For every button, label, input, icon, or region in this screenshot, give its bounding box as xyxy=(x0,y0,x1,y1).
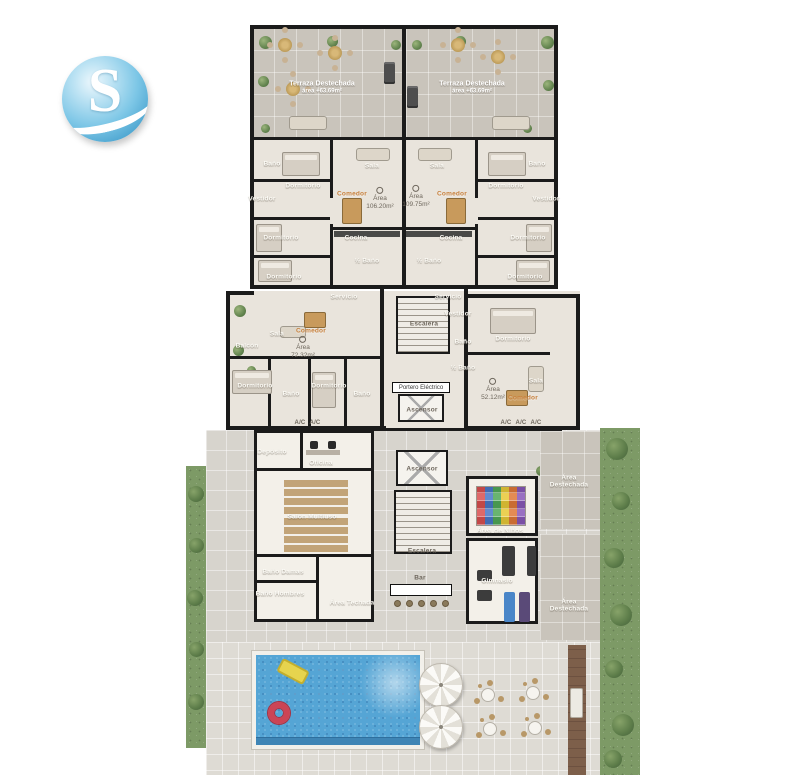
sofa-icon xyxy=(418,148,452,161)
wall xyxy=(468,352,550,355)
wall xyxy=(464,294,580,298)
label-ac: A/C xyxy=(295,420,306,426)
label-area-techada: Área Techada xyxy=(330,600,375,607)
plant-icon xyxy=(259,36,272,49)
label-ac: A/C xyxy=(531,420,542,426)
label-ac: A/C xyxy=(501,420,512,426)
table-icon xyxy=(278,38,292,52)
bush-icon xyxy=(187,590,203,606)
label-dormitorio: Dormitorio xyxy=(510,235,545,242)
bar-counter xyxy=(390,584,452,596)
table-icon xyxy=(328,46,342,60)
stool-icon xyxy=(406,600,413,607)
area-badge-upper-right: Área 109.75m² xyxy=(402,185,429,209)
bush-icon xyxy=(188,694,204,710)
label-dormitorio: Dormitorio xyxy=(507,274,542,281)
yoga-mat-icon xyxy=(519,592,530,622)
label-oficina: Oficina xyxy=(309,460,332,467)
wall xyxy=(250,285,558,289)
wall xyxy=(402,140,406,288)
sofa-icon xyxy=(492,116,530,130)
label-terrace-right: Terraza Destechada área +63.69m² xyxy=(439,80,505,97)
label-banio-damas: Baño Damas xyxy=(262,569,303,576)
plant-icon xyxy=(543,80,554,91)
label-banio: Baño xyxy=(353,391,370,398)
wall xyxy=(330,140,333,198)
office-chair-icon xyxy=(328,441,336,449)
bush-icon xyxy=(612,492,630,510)
dining-table-icon xyxy=(446,198,466,224)
table-icon xyxy=(491,50,505,64)
wall xyxy=(226,291,230,430)
stairs xyxy=(394,490,452,554)
area-badge-upper-left: Área 106.20m² xyxy=(366,187,393,211)
patio-table-icon xyxy=(481,688,495,702)
chairs-grid xyxy=(284,518,348,552)
area-badge-mid-left: Área 72.32m² xyxy=(291,336,315,360)
terrace-area: área +63.69m² xyxy=(439,89,505,97)
play-mat-icon xyxy=(476,486,526,526)
compass-icon xyxy=(299,336,306,343)
wall xyxy=(254,468,374,471)
bed-icon xyxy=(490,308,536,334)
wall xyxy=(478,255,556,258)
swim-ring-icon xyxy=(268,702,290,724)
bush-icon xyxy=(188,486,204,502)
floor-plan-canvas: S Terraza Destechada área +63.69m² Terra… xyxy=(0,0,800,782)
label-sala: Sala xyxy=(365,163,379,170)
pool-step xyxy=(256,737,420,745)
area-value: 72.32m² xyxy=(291,352,315,360)
wall xyxy=(250,25,254,140)
exercise-bike-icon xyxy=(477,590,492,601)
bed-icon xyxy=(282,152,320,176)
compass-icon xyxy=(413,185,420,192)
label-medio-banio: ½ Baño xyxy=(355,258,380,265)
label-escalera: Escalera xyxy=(408,548,436,555)
area-label: Área xyxy=(486,386,500,394)
wall xyxy=(300,430,303,468)
label-ascensor: Ascensor xyxy=(406,407,437,414)
label-banio-hombres: Baño Hombres xyxy=(256,591,305,598)
compass-icon xyxy=(489,378,496,385)
dining-table-icon xyxy=(342,198,362,224)
plant-icon xyxy=(541,36,554,49)
label-comedor: Comedor xyxy=(437,191,467,198)
label-vestidor: Vestidor xyxy=(532,196,559,203)
label-escalera: Escalera xyxy=(410,321,438,328)
compass-icon xyxy=(377,187,384,194)
label-comedor: Comedor xyxy=(508,395,538,402)
terrace-name: Terraza Destechada xyxy=(289,80,355,89)
wall xyxy=(554,140,558,288)
table-icon xyxy=(451,38,465,52)
label-ac: A/C xyxy=(310,420,321,426)
stool-icon xyxy=(394,600,401,607)
label-area-ninos: Área de Niños xyxy=(477,528,523,535)
bush-icon xyxy=(604,548,624,568)
bed-icon xyxy=(488,152,526,176)
area-value: 52.12m² xyxy=(481,394,505,402)
label-balcon: Balcón xyxy=(236,343,259,350)
wall xyxy=(475,140,478,198)
wall xyxy=(250,140,254,288)
area-badge-mid-right: Área 52.12m² xyxy=(481,378,505,402)
label-medio-banio: ½ Baño xyxy=(417,258,442,265)
terrace-area: área +63.69m² xyxy=(289,89,355,97)
lounger-icon xyxy=(570,688,583,718)
label-banio: Baño xyxy=(454,339,471,346)
wall xyxy=(330,224,333,286)
bush-icon xyxy=(610,604,632,626)
office-chair-icon xyxy=(310,441,318,449)
label-vestidor: Vestidor xyxy=(444,311,471,318)
label-salon-multiuso: Salón Multiuso xyxy=(287,514,336,521)
sofa-icon xyxy=(356,148,390,161)
area-value: 106.20m² xyxy=(366,203,393,211)
label-terrace-left: Terraza Destechada área +63.69m² xyxy=(289,80,355,97)
stool-icon xyxy=(430,600,437,607)
uncovered-area-lower xyxy=(540,534,600,640)
patio-table-icon xyxy=(528,721,542,735)
label-dormitorio: Dormitorio xyxy=(237,383,272,390)
wall xyxy=(254,554,374,557)
elliptical-icon xyxy=(527,546,536,576)
dining-table-icon xyxy=(304,312,326,328)
wall xyxy=(254,580,316,583)
label-vestidor: Vestidor xyxy=(248,196,275,203)
desk-icon xyxy=(306,450,340,455)
label-sala: Sala xyxy=(270,331,284,338)
label-servicio: Servicio xyxy=(435,294,462,301)
label-ac: A/C xyxy=(516,420,527,426)
wall xyxy=(252,255,330,258)
bush-icon xyxy=(606,438,628,460)
wall xyxy=(308,356,311,426)
wall xyxy=(402,25,406,140)
patio-table-icon xyxy=(483,722,497,736)
grill-icon xyxy=(407,86,418,108)
label-servicio: Servicio xyxy=(331,294,358,301)
patio-table-icon xyxy=(526,686,540,700)
wall xyxy=(344,356,347,426)
plant-icon xyxy=(412,40,422,50)
yoga-mat-icon xyxy=(504,592,515,622)
plant-icon xyxy=(261,124,270,133)
wall xyxy=(333,227,403,230)
grill-icon xyxy=(384,62,395,84)
umbrella-icon xyxy=(419,663,463,707)
label-dormitorio: Dormitorio xyxy=(488,183,523,190)
label-dormitorio: Dormitorio xyxy=(495,336,530,343)
sofa-icon xyxy=(289,116,327,130)
treadmill-icon xyxy=(502,546,515,576)
label-cocina: Cocina xyxy=(440,235,463,242)
bush-icon xyxy=(605,660,623,678)
wall xyxy=(405,227,475,230)
area-label: Área xyxy=(296,344,310,352)
label-gimnasio: Gimnasio xyxy=(481,578,512,585)
area-value: 109.75m² xyxy=(402,201,429,209)
plant-icon xyxy=(391,40,401,50)
bush-icon xyxy=(189,642,204,657)
label-area-destechada: Área Destechada xyxy=(545,599,593,614)
label-banio: Baño xyxy=(263,161,280,168)
bush-icon xyxy=(612,714,634,736)
label-ascensor: Ascensor xyxy=(406,466,437,473)
stool-icon xyxy=(442,600,449,607)
label-sala: Sala xyxy=(529,378,543,385)
label-area-destechada: Área Destechada xyxy=(545,475,593,490)
plant-icon xyxy=(258,76,269,87)
wall xyxy=(226,291,254,295)
area-label: Área xyxy=(409,193,423,201)
bed-icon xyxy=(312,372,336,408)
label-portero-electrico: Portero Eléctrico xyxy=(392,382,450,393)
bush-icon xyxy=(189,538,204,553)
label-banio: Baño xyxy=(528,161,545,168)
umbrella-icon xyxy=(419,705,463,749)
label-dormitorio: Dormitorio xyxy=(266,274,301,281)
wall xyxy=(464,287,468,430)
label-bar: Bar xyxy=(414,575,425,582)
terrace-name: Terraza Destechada xyxy=(439,80,505,89)
logo-letter: S xyxy=(62,56,148,127)
label-dormitorio: Dormitorio xyxy=(311,383,346,390)
wall xyxy=(576,294,580,430)
label-deposito: Depósito xyxy=(257,449,286,456)
area-label: Área xyxy=(373,195,387,203)
bush-icon xyxy=(604,750,622,768)
logo: S xyxy=(62,56,148,142)
label-sala: Sala xyxy=(430,163,444,170)
plant-icon xyxy=(234,305,246,317)
label-dormitorio: Dormitorio xyxy=(263,235,298,242)
stool-icon xyxy=(418,600,425,607)
label-dormitorio: Dormitorio xyxy=(285,183,320,190)
wall xyxy=(554,25,558,140)
label-medio-banio: ½ Baño xyxy=(451,365,476,372)
label-comedor: Comedor xyxy=(296,328,326,335)
label-cocina: Cocina xyxy=(345,235,368,242)
wall xyxy=(316,554,319,622)
wall xyxy=(478,217,556,220)
label-comedor: Comedor xyxy=(337,191,367,198)
wall xyxy=(252,217,330,220)
label-banio: Baño xyxy=(282,391,299,398)
chairs-grid xyxy=(284,480,348,514)
